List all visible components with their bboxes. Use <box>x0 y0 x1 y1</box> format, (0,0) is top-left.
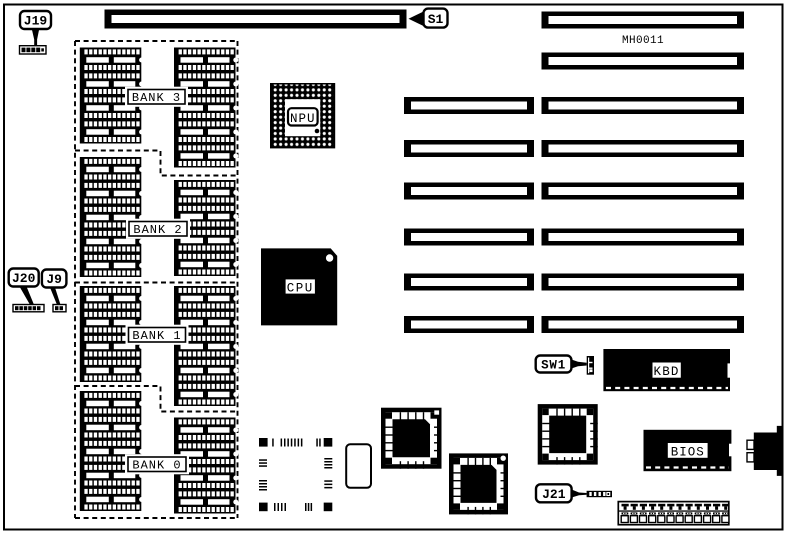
svg-text:CPU: CPU <box>287 281 314 295</box>
svg-text:MH0011: MH0011 <box>622 35 664 47</box>
svg-text:BIOS: BIOS <box>671 445 705 459</box>
svg-text:KBD: KBD <box>654 365 680 379</box>
svg-text:S1: S1 <box>428 12 444 27</box>
svg-text:J20: J20 <box>12 271 36 286</box>
svg-text:SW1: SW1 <box>541 359 566 373</box>
svg-text:J19: J19 <box>24 14 48 29</box>
svg-text:BANK 3: BANK 3 <box>132 91 181 105</box>
svg-text:NPU: NPU <box>290 112 316 126</box>
svg-text:BANK 1: BANK 1 <box>132 329 181 343</box>
svg-text:BANK 0: BANK 0 <box>132 459 181 473</box>
svg-text:J21: J21 <box>542 487 566 502</box>
svg-text:J9: J9 <box>46 272 62 287</box>
svg-text:BANK 2: BANK 2 <box>133 223 182 237</box>
